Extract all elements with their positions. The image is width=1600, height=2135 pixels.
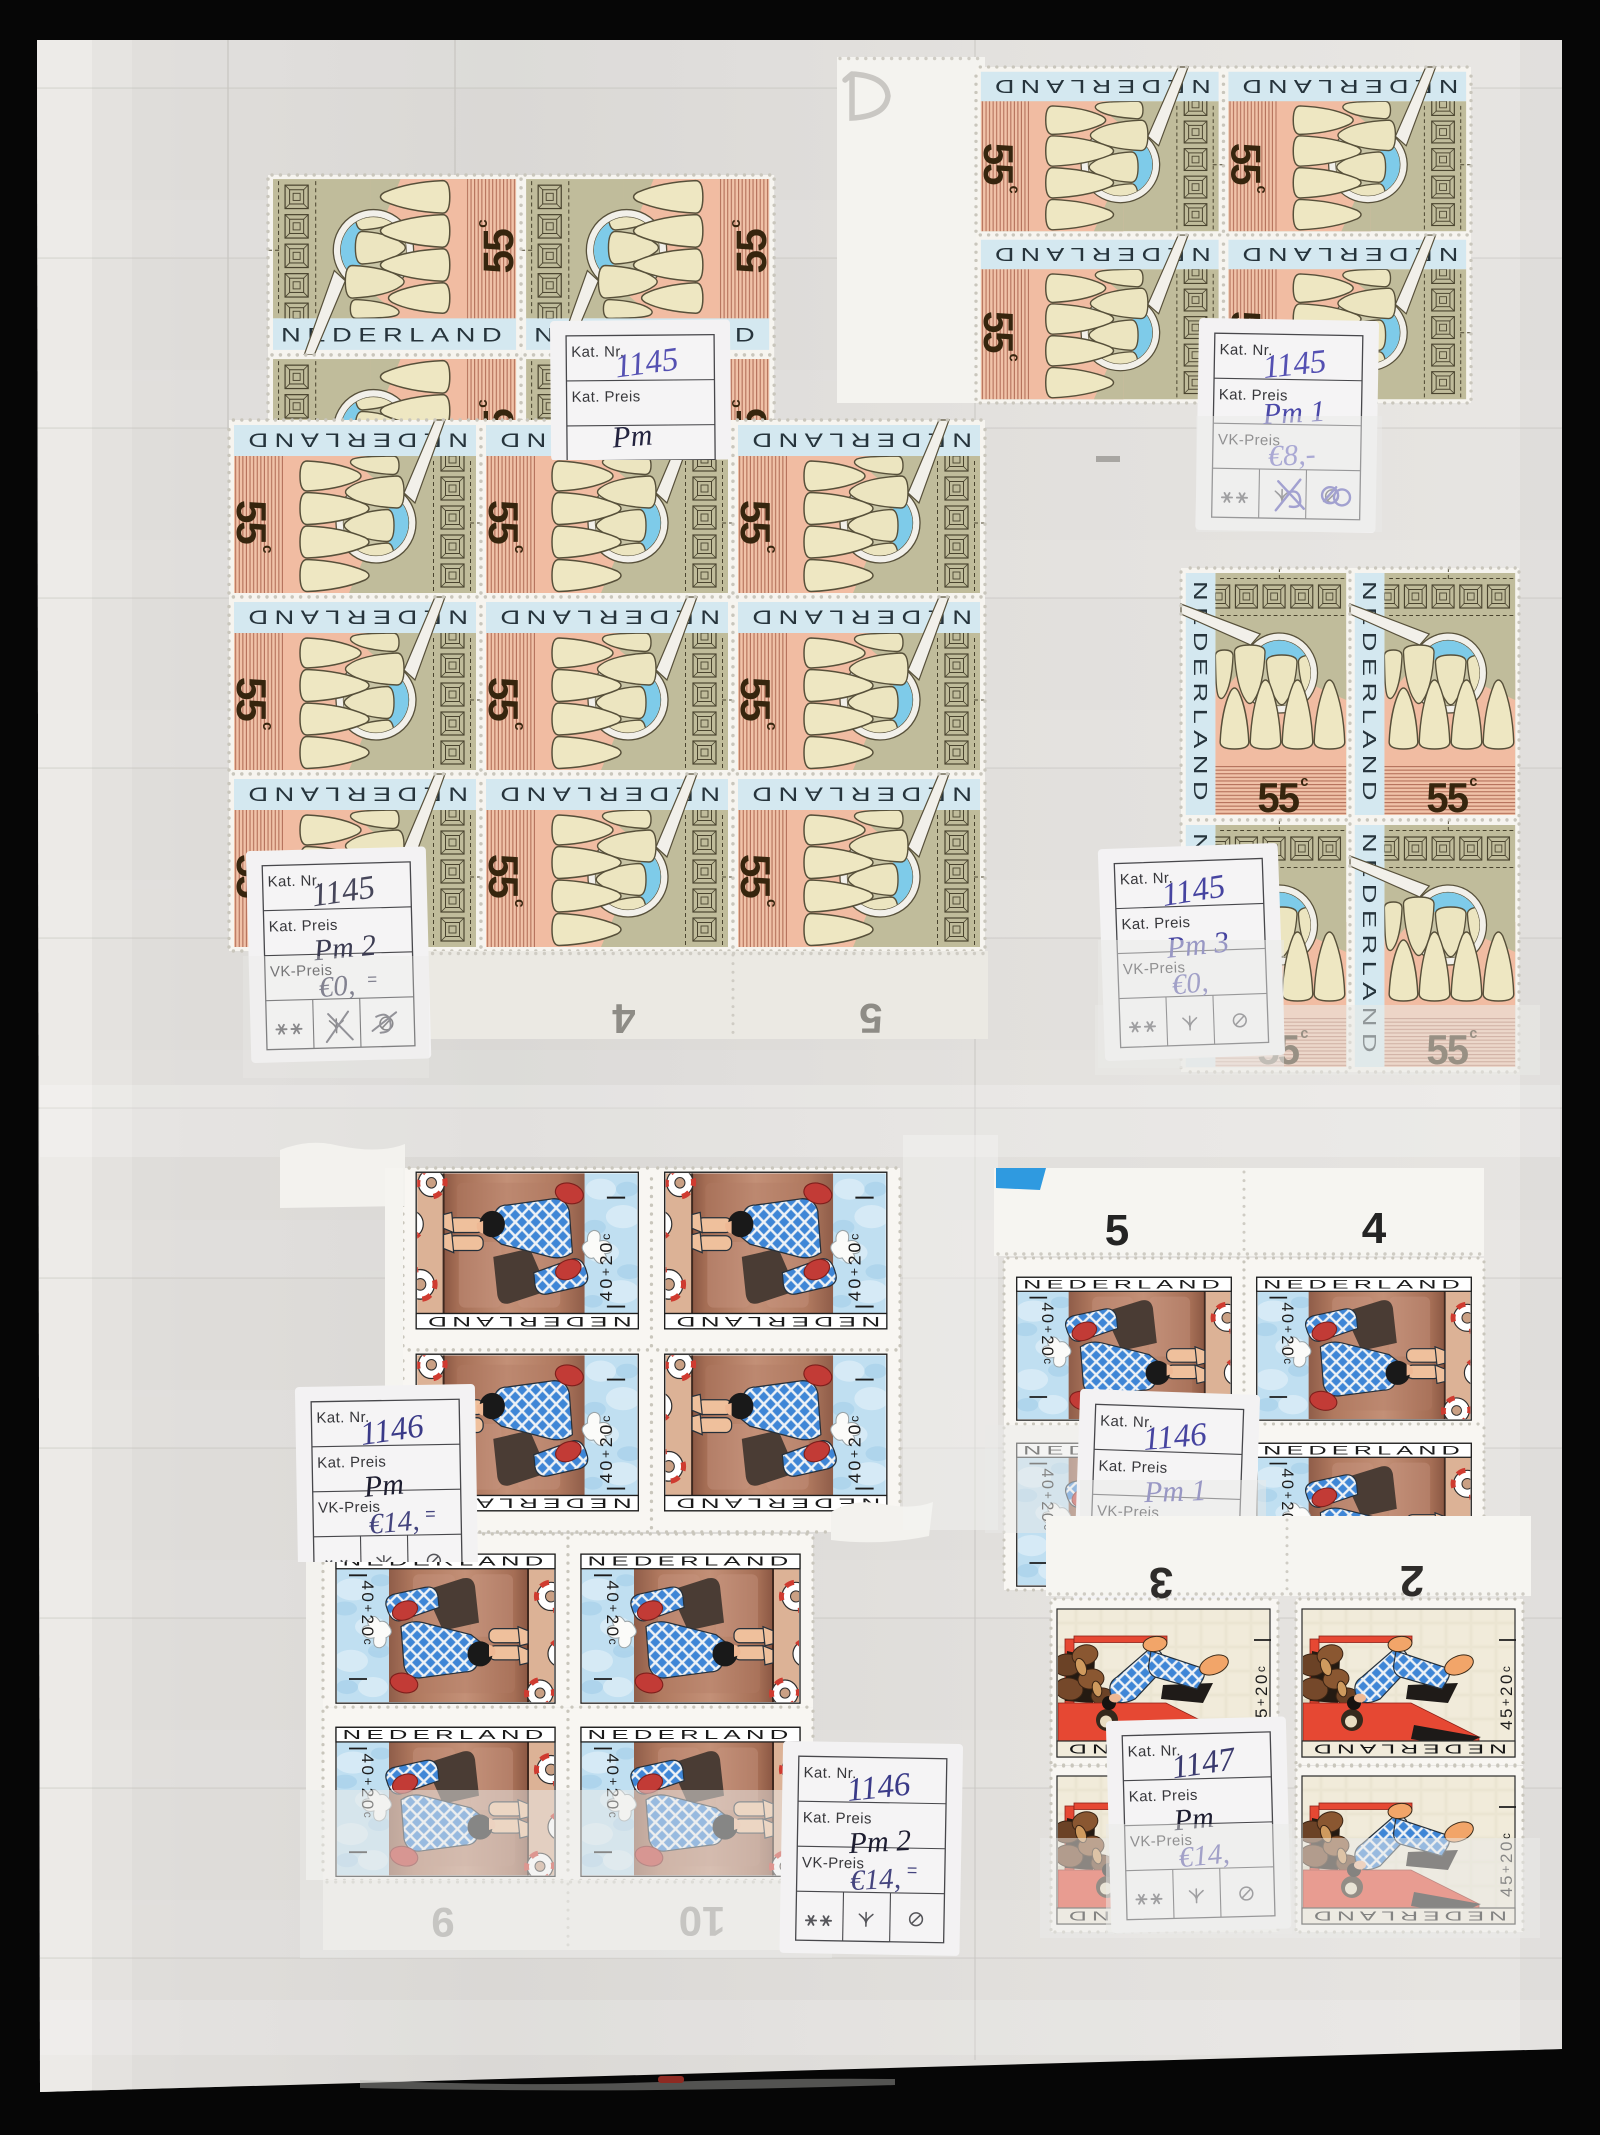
svg-text:5: 5 — [1105, 1206, 1129, 1255]
svg-text:1146: 1146 — [845, 1766, 912, 1808]
svg-text:1146: 1146 — [1142, 1417, 1209, 1458]
svg-text:4: 4 — [1362, 1204, 1387, 1253]
svg-text:€14,: €14, — [849, 1862, 901, 1897]
svg-text:Pm: Pm — [362, 1468, 406, 1504]
svg-text:1145: 1145 — [1261, 344, 1328, 386]
svg-text:Pm: Pm — [610, 418, 653, 454]
svg-text:€14,: €14, — [367, 1504, 420, 1540]
svg-text:5: 5 — [859, 995, 882, 1042]
svg-text:Pm 2: Pm 2 — [847, 1824, 912, 1860]
svg-text:Kat. Preis: Kat. Preis — [572, 388, 641, 406]
svg-text:=: = — [907, 1860, 918, 1880]
svg-text:4: 4 — [612, 995, 636, 1042]
svg-text:=: = — [425, 1504, 436, 1524]
